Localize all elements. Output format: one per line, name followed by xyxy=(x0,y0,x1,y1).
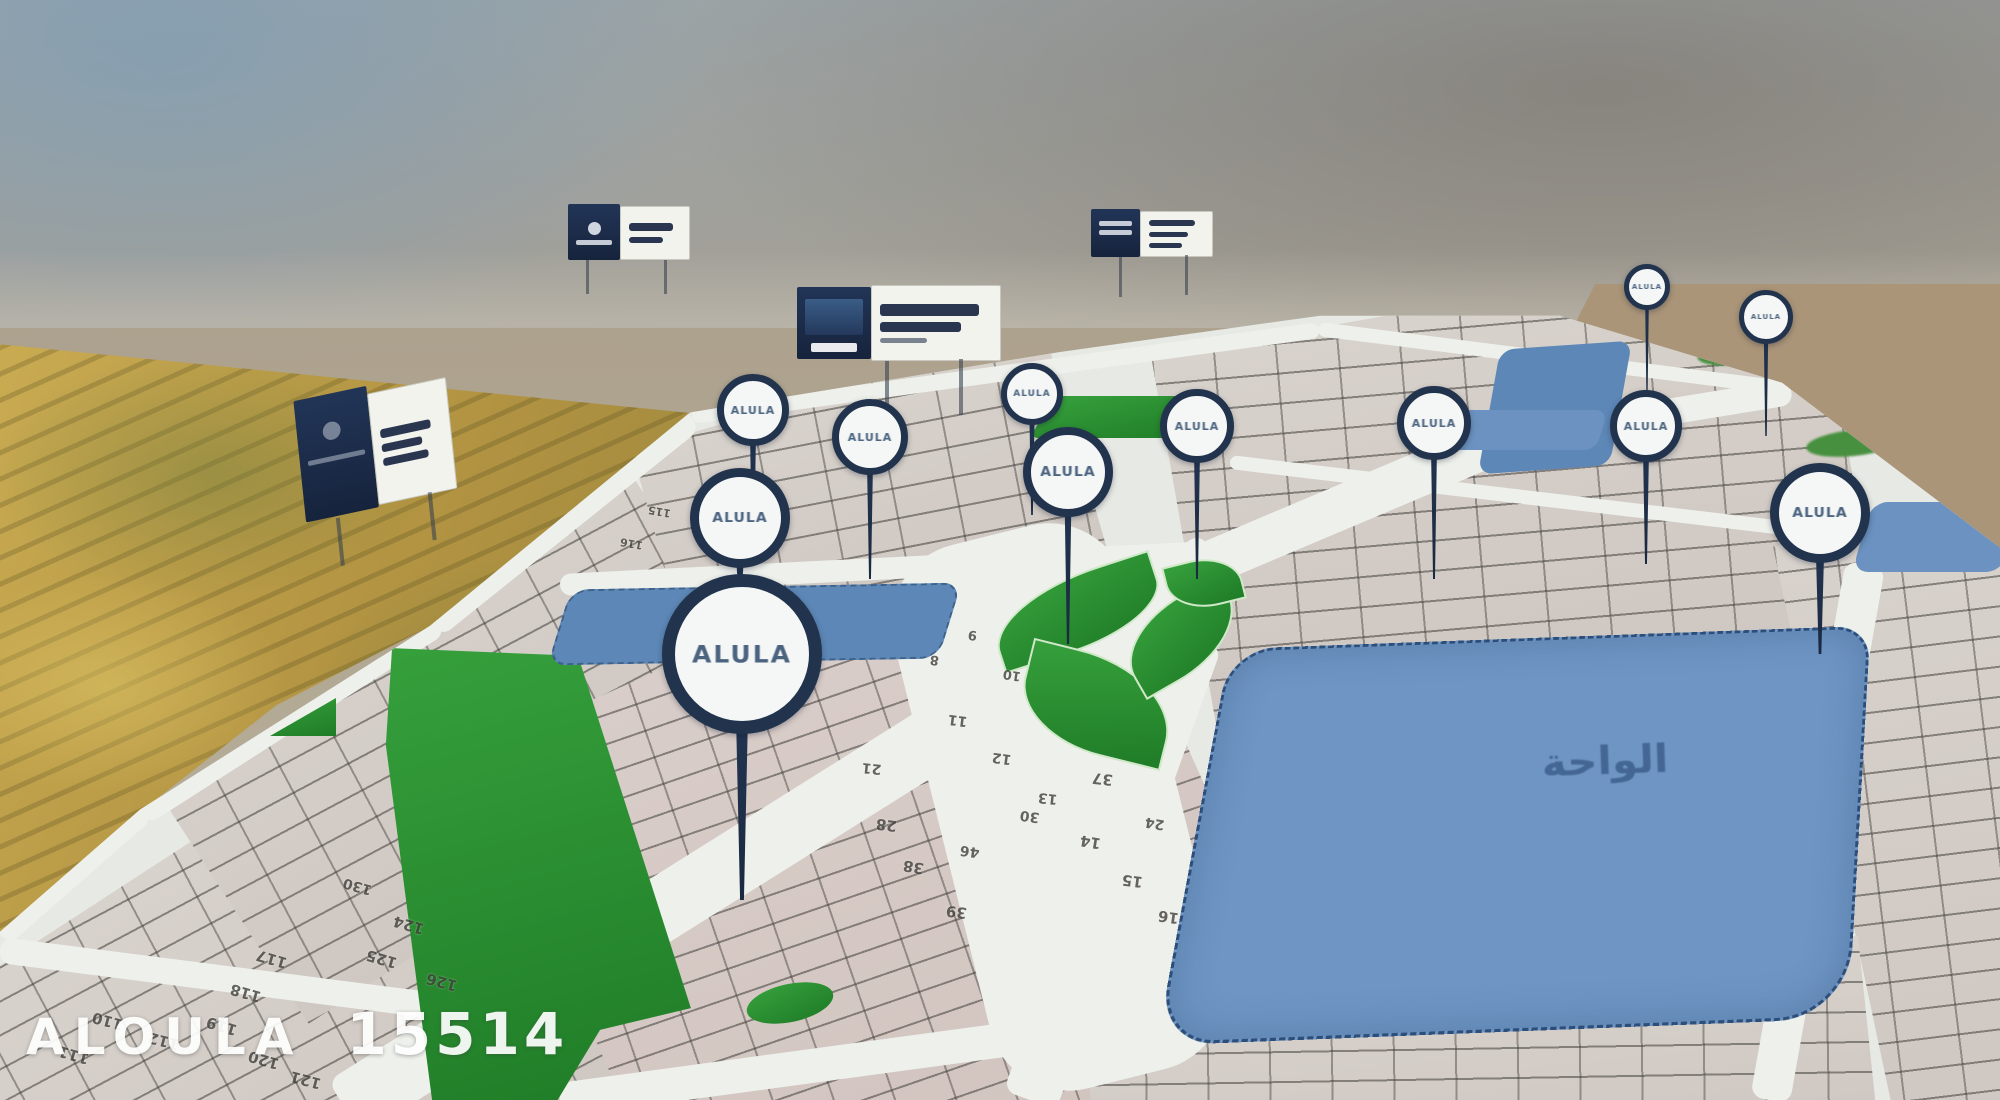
plot-number: 15 xyxy=(1121,871,1144,891)
pin-circle: ALULA xyxy=(1397,386,1471,460)
watermark-brand: ALOULA xyxy=(26,1008,302,1066)
pin-logo-text: ALULA xyxy=(1632,283,1662,291)
pin-logo-text: ALULA xyxy=(731,404,776,416)
pin-logo-text: ALULA xyxy=(1040,464,1095,479)
plot-number: 10 xyxy=(1002,666,1022,684)
pin-circle: ALULA xyxy=(832,399,908,475)
pond xyxy=(1478,341,1632,475)
plot-number: 46 xyxy=(959,842,981,861)
billboard-leg xyxy=(586,260,589,294)
billboard-logo-panel xyxy=(797,287,871,359)
plot-number: 9 xyxy=(967,627,978,643)
billboard-text-panel xyxy=(871,285,1001,361)
arabic-text-line xyxy=(381,436,422,453)
billboard-leg xyxy=(1185,255,1188,295)
pin-circle: ALULA xyxy=(1624,264,1670,310)
pin-logo-text: ALULA xyxy=(692,640,792,668)
map-pin[interactable]: ALULA xyxy=(1739,290,1793,344)
plot-number: 12 xyxy=(991,749,1013,768)
pin-circle: ALULA xyxy=(717,374,789,446)
plot-number: 28 xyxy=(875,815,898,835)
billboard-leg xyxy=(959,359,963,415)
pin-logo-text: ALULA xyxy=(1175,420,1220,432)
map-pin[interactable]: ALULA xyxy=(1624,264,1670,310)
arabic-text-line xyxy=(880,338,927,343)
pin-circle: ALULA xyxy=(690,468,790,568)
map-pin[interactable]: ALULA xyxy=(690,468,790,568)
plot-number: 21 xyxy=(861,759,882,777)
pin-circle: ALULA xyxy=(1770,463,1870,563)
plot-number: 11 xyxy=(947,711,968,729)
plot-number: 39 xyxy=(945,902,968,922)
billboard-leg xyxy=(428,492,437,541)
plot-number: 14 xyxy=(1079,831,1102,852)
map-pin[interactable]: ALULA xyxy=(717,374,789,446)
arabic-text-line xyxy=(1149,232,1188,237)
pin-circle: ALULA xyxy=(1739,290,1793,344)
pin-logo-text: ALULA xyxy=(848,431,893,443)
map-pin-large[interactable]: ALULA xyxy=(662,574,822,734)
plot-number: 38 xyxy=(902,856,925,877)
pin-circle: ALULA xyxy=(1023,427,1113,517)
map-pin[interactable]: ALULA xyxy=(1023,427,1113,517)
pin-logo-text: ALULA xyxy=(1792,505,1847,520)
billboard-text-panel xyxy=(620,206,690,260)
map-pin[interactable]: ALULA xyxy=(1770,463,1870,563)
arabic-text-line xyxy=(1149,220,1195,226)
billboard-leg xyxy=(664,260,667,294)
map-pin[interactable]: ALULA xyxy=(1610,390,1682,462)
billboard-text-panel xyxy=(1140,211,1213,257)
pin-logo-text: ALULA xyxy=(1013,389,1050,399)
pin-logo-text: ALULA xyxy=(712,510,767,525)
pin-logo-text: ALULA xyxy=(1624,420,1669,432)
billboard-text-panel xyxy=(367,377,457,505)
billboard-top-left xyxy=(568,200,692,304)
arabic-text-line xyxy=(880,322,961,332)
arabic-text-line xyxy=(629,237,663,243)
plot-number: 24 xyxy=(1144,814,1166,833)
watermark: ALOULA 15514 xyxy=(26,1000,568,1068)
arabic-text-line xyxy=(380,419,431,439)
masterplan-aerial-view: الواحة 891011121314151621242830373839461… xyxy=(0,0,2000,1100)
pin-circle: ALULA xyxy=(1610,390,1682,462)
billboard-left-tilted xyxy=(293,368,470,590)
arabic-text-line xyxy=(629,223,673,231)
pin-logo-text: ALULA xyxy=(1412,417,1457,429)
arabic-text-line xyxy=(383,448,429,466)
arabic-text-line xyxy=(880,304,979,316)
billboard-top-right xyxy=(1091,207,1215,303)
billboard-logo-panel xyxy=(568,204,620,260)
watermark-number: 15514 xyxy=(346,1000,568,1068)
lake-parcel xyxy=(1156,626,1870,1046)
plot-number: 37 xyxy=(1091,769,1114,789)
pin-circle: ALULA xyxy=(662,574,822,734)
plot-number: 30 xyxy=(1019,807,1041,826)
billboard-wordmark xyxy=(811,343,857,352)
billboard-logo-panel xyxy=(1091,209,1140,257)
pin-logo-text: ALULA xyxy=(1751,313,1781,321)
billboard-leg xyxy=(1119,257,1122,297)
plot-number: 13 xyxy=(1037,789,1058,807)
map-pin[interactable]: ALULA xyxy=(1001,363,1063,425)
billboard-leg xyxy=(336,517,345,566)
map-pin[interactable]: ALULA xyxy=(1160,389,1234,463)
billboard-photo xyxy=(805,299,863,335)
pin-circle: ALULA xyxy=(1160,389,1234,463)
billboard-logo-panel xyxy=(293,386,379,523)
map-pin[interactable]: ALULA xyxy=(832,399,908,475)
arabic-text-line xyxy=(1149,243,1182,248)
plot-number: 16 xyxy=(1157,907,1180,928)
pin-circle: ALULA xyxy=(1001,363,1063,425)
map-pin[interactable]: ALULA xyxy=(1397,386,1471,460)
